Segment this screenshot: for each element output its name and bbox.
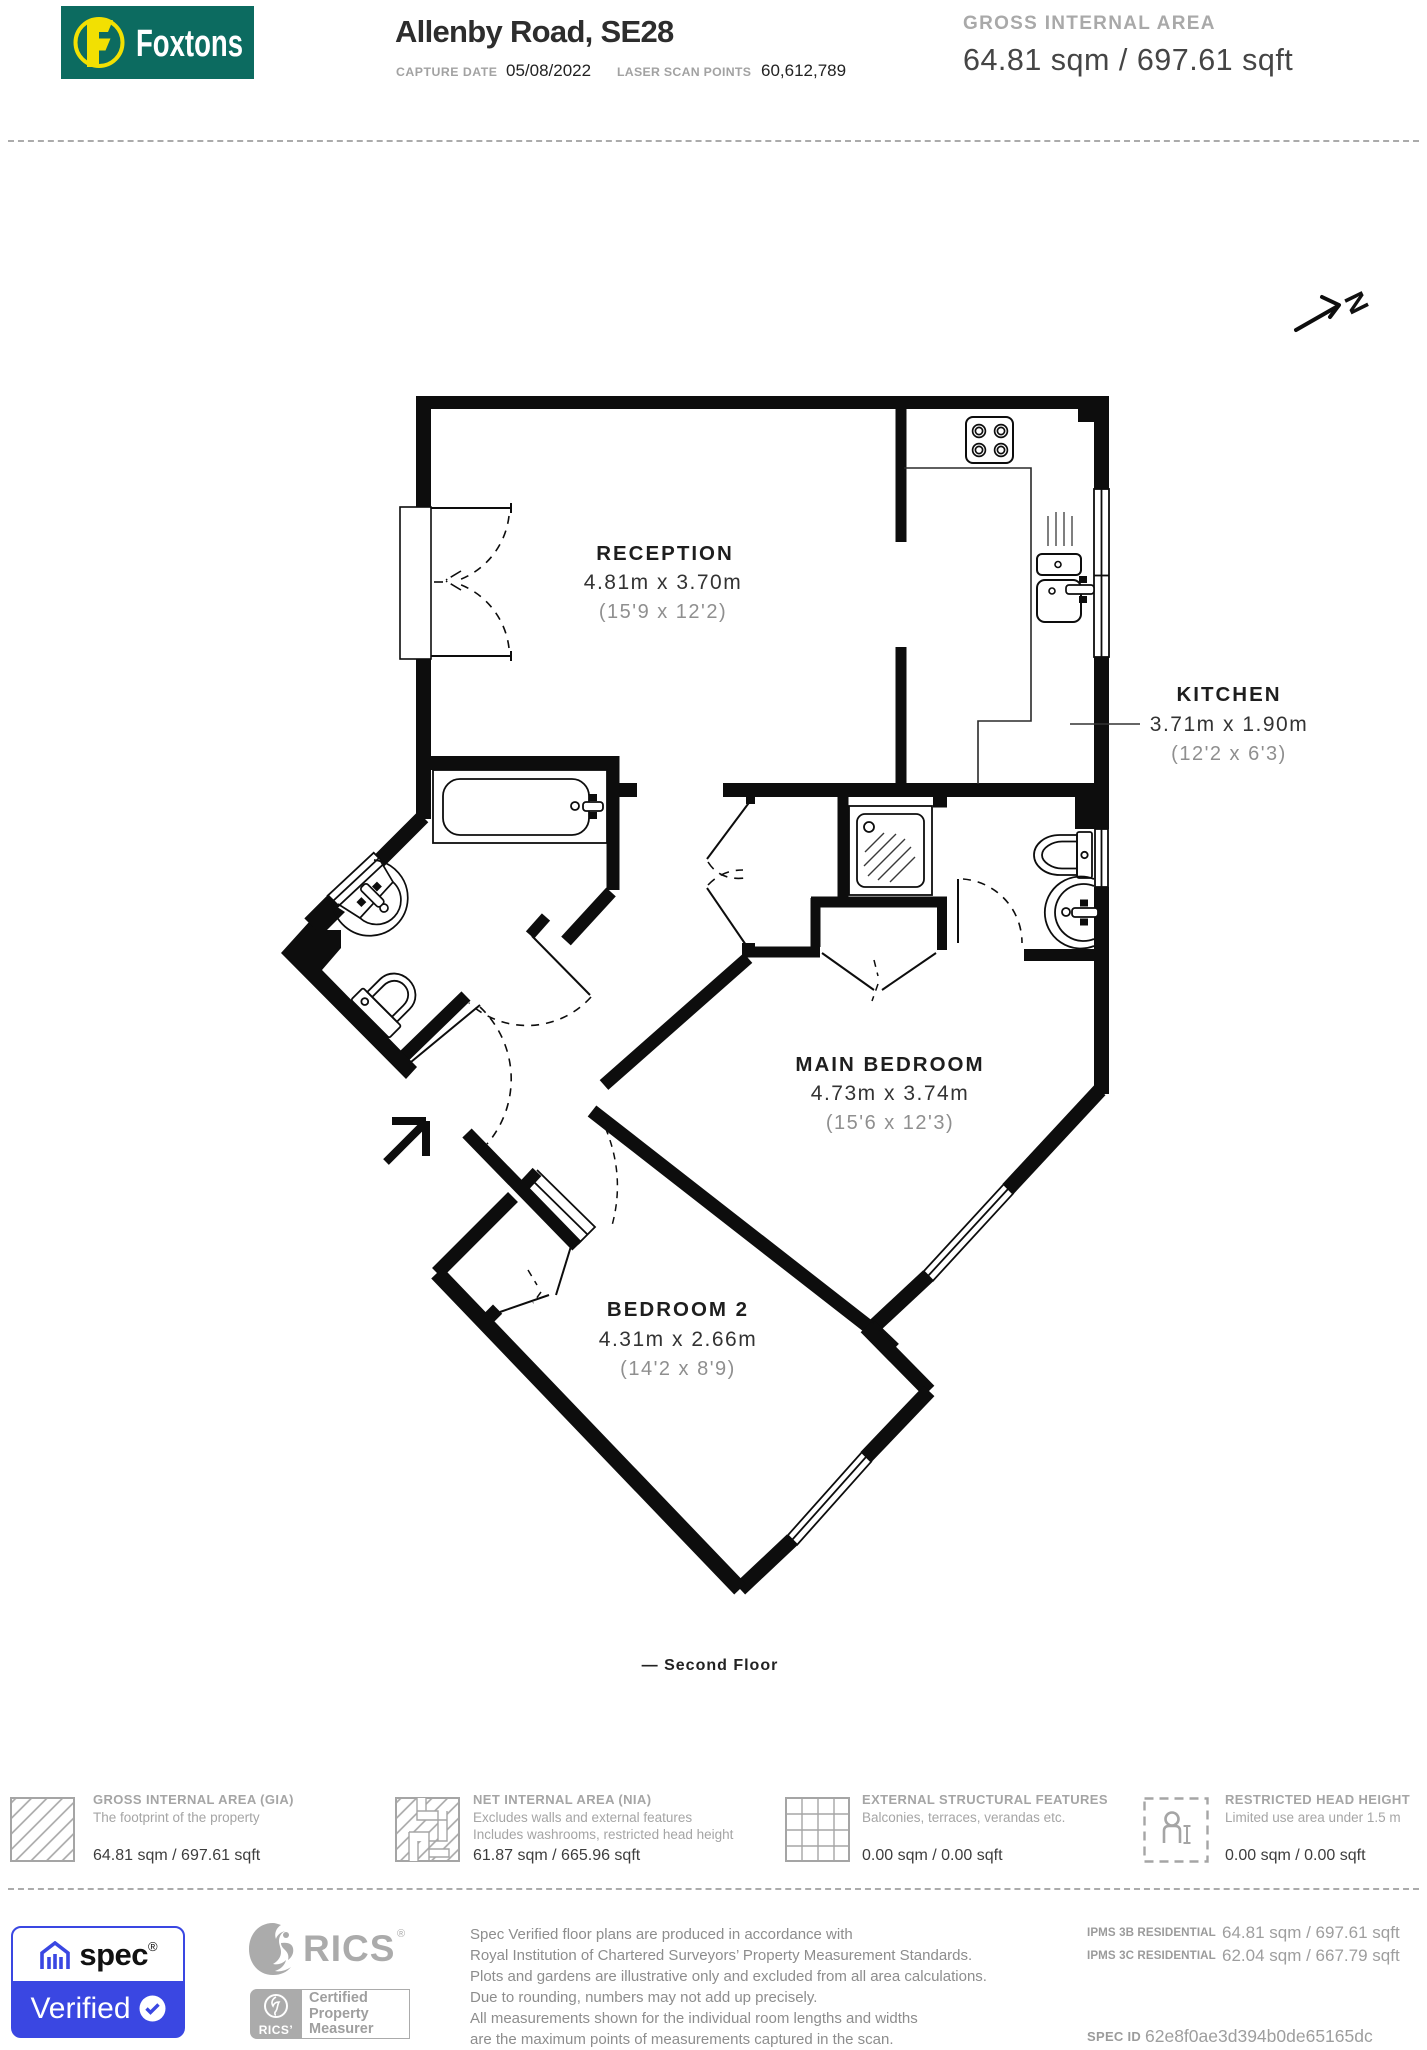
- svg-text:— Second Floor: — Second Floor: [642, 1657, 779, 1674]
- svg-text:(15'6 x 12'3): (15'6 x 12'3): [826, 1112, 954, 1134]
- svg-text:3.71m x 1.90m: 3.71m x 1.90m: [1150, 713, 1308, 736]
- svg-text:(14'2 x 8'9): (14'2 x 8'9): [620, 1358, 736, 1380]
- svg-text:®: ®: [397, 1928, 405, 1940]
- svg-text:4.81m x 3.70m: 4.81m x 3.70m: [584, 571, 742, 594]
- svg-text:4.73m x 3.74m: 4.73m x 3.74m: [811, 1082, 969, 1105]
- svg-text:N: N: [1338, 287, 1375, 319]
- svg-text:MAIN BEDROOM: MAIN BEDROOM: [795, 1053, 984, 1076]
- svg-text:(12'2 x 6'3): (12'2 x 6'3): [1171, 743, 1287, 765]
- svg-text:4.31m x 2.66m: 4.31m x 2.66m: [599, 1328, 757, 1351]
- svg-text:KITCHEN: KITCHEN: [1176, 683, 1281, 706]
- svg-text:RECEPTION: RECEPTION: [596, 542, 734, 565]
- svg-text:BEDROOM 2: BEDROOM 2: [607, 1298, 749, 1321]
- svg-text:RICS: RICS: [303, 1928, 395, 1969]
- svg-text:(15'9 x 12'2): (15'9 x 12'2): [599, 601, 727, 623]
